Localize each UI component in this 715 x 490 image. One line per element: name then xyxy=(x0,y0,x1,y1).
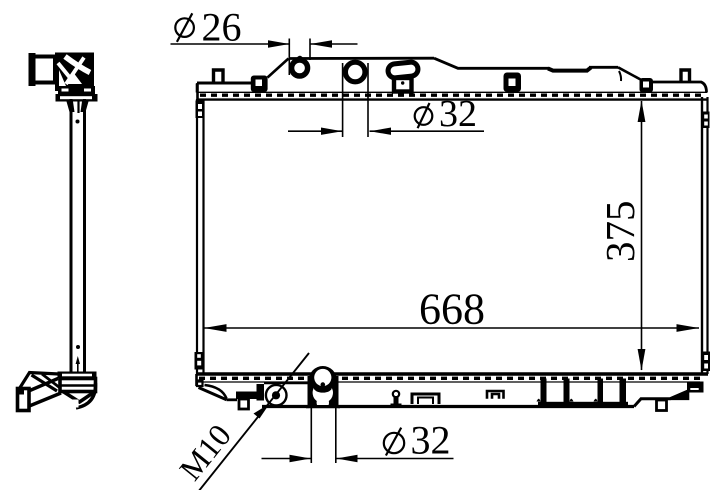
svg-text:32: 32 xyxy=(411,417,451,462)
svg-text:375: 375 xyxy=(597,201,643,263)
svg-text:32: 32 xyxy=(439,93,477,135)
svg-text:26: 26 xyxy=(202,4,242,49)
svg-text:668: 668 xyxy=(419,285,485,334)
